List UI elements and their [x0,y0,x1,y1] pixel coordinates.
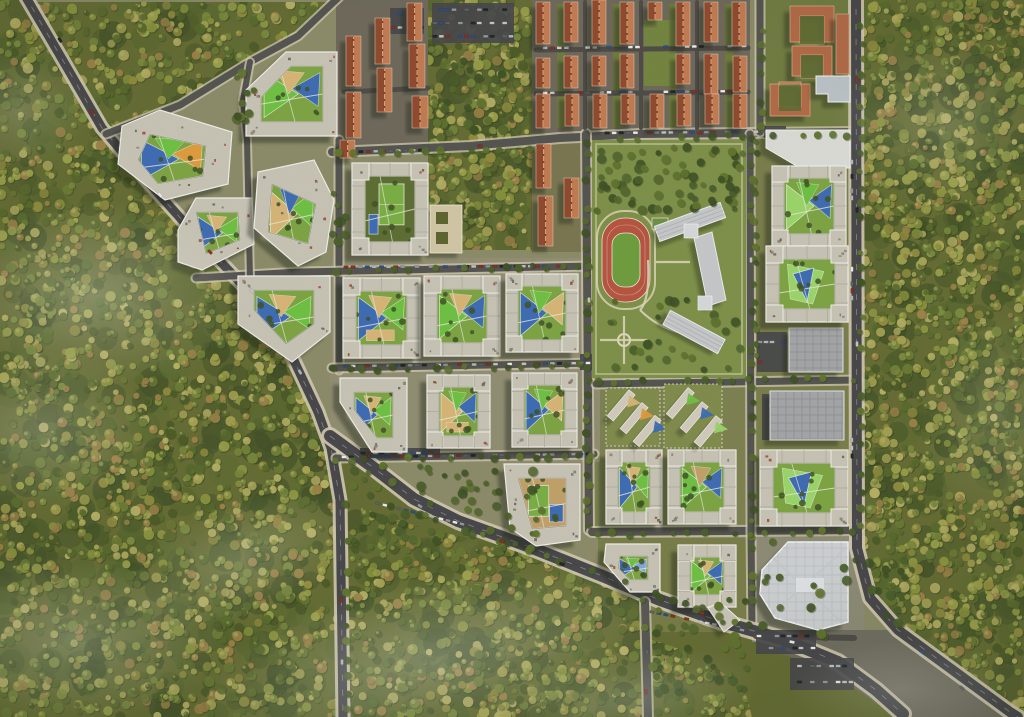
aerial-masterplan-viewport [0,0,1024,717]
vignette-overlay [0,0,1024,717]
fog-layer [0,0,1024,717]
masterplan-aerial-render [0,0,1024,717]
